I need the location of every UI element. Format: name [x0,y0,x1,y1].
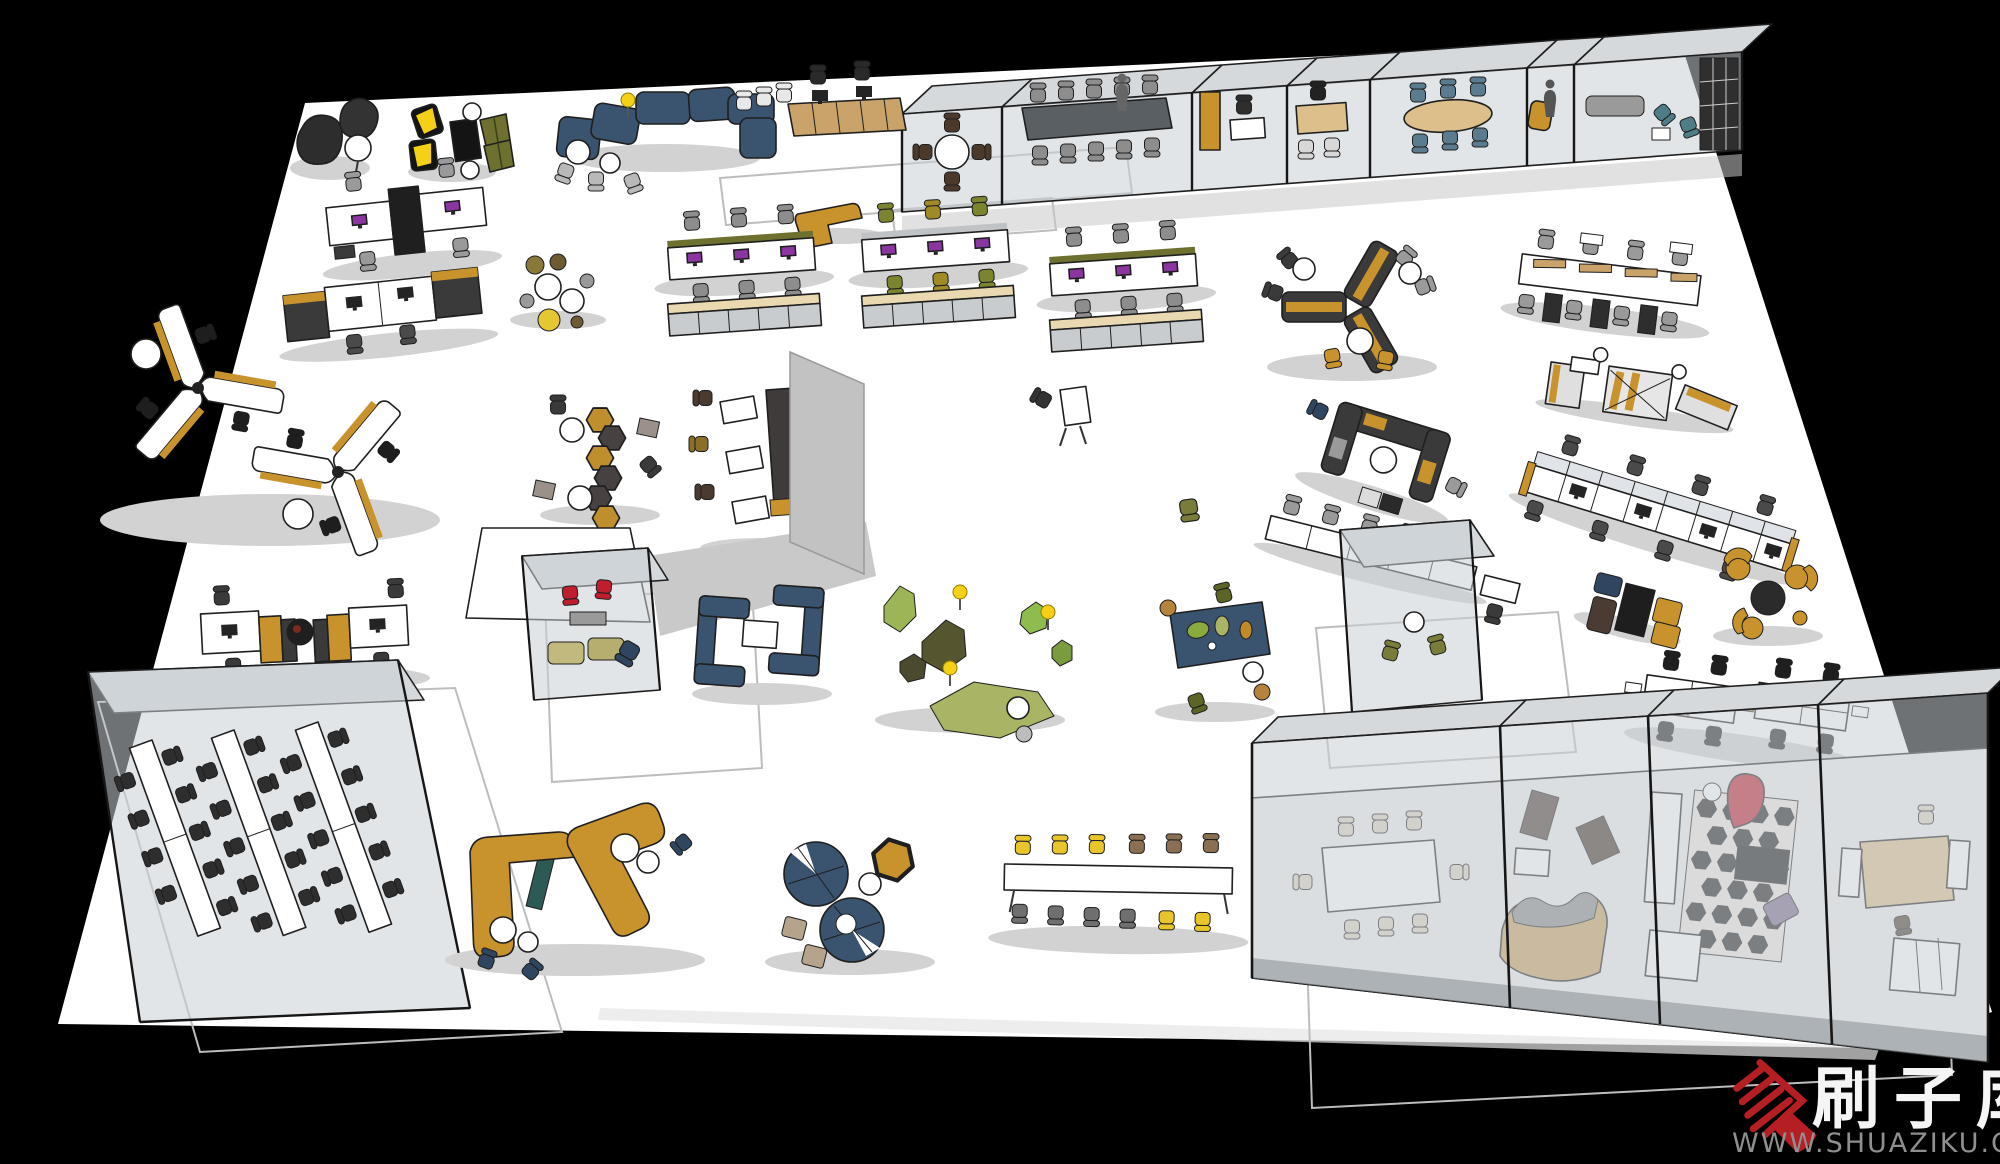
room-boardroom [1022,74,1172,166]
standing-figure [1544,80,1556,118]
watermark-url: WWW.SHUAZIKU.COM [1732,1128,2000,1159]
room-oval-meeting [1403,77,1493,153]
standing-figure [1116,74,1128,112]
bookshelf [1700,58,1738,150]
watermark: 刷子库 WWW.SHUAZIKU.COM [1724,1056,2000,1164]
floorplan-canvas: 刷子库 WWW.SHUAZIKU.COM [0,0,2000,1164]
office-floorplan-render: 刷子库 WWW.SHUAZIKU.COM [0,0,2000,1164]
focus-cube-red [522,548,668,700]
